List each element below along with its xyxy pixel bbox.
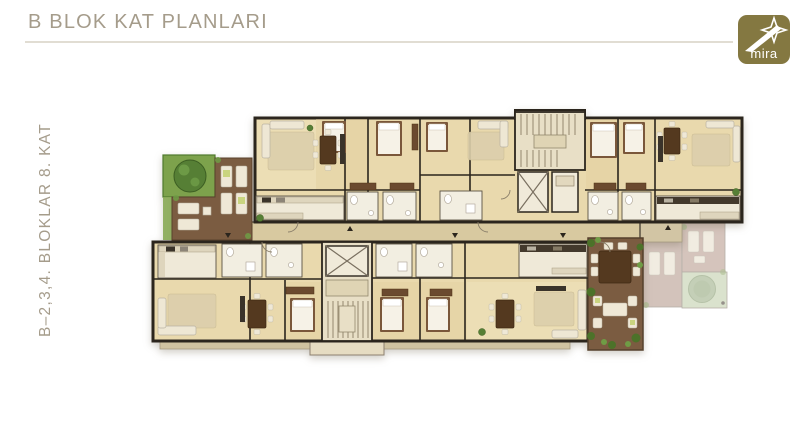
- cushion: [238, 197, 245, 204]
- bed-icon: [426, 297, 450, 332]
- tree-highlight: [179, 165, 190, 176]
- dining-table: [320, 136, 336, 164]
- ghost-leaf: [720, 269, 726, 275]
- bottom-core-landing: [310, 341, 384, 355]
- bed-icon: [290, 298, 315, 332]
- slide-canvas: B BLOK KAT PLANLARI mira B–2,3,4. BLOKLA…: [0, 0, 800, 425]
- core-lobby: [326, 280, 368, 296]
- cushion: [223, 170, 230, 177]
- cushion: [630, 320, 635, 325]
- dining-table: [496, 300, 514, 328]
- ghost-leaf: [643, 302, 649, 308]
- dining-table: [248, 300, 266, 328]
- stair-core-bottom: [322, 242, 372, 341]
- floor-plan: [0, 0, 800, 425]
- ghost-terrace-a: [642, 242, 682, 307]
- dining-table: [664, 128, 680, 154]
- leaf: [245, 233, 251, 239]
- bed-icon: [623, 122, 645, 154]
- shaft-b-cab: [556, 176, 574, 186]
- tree-highlight: [191, 178, 200, 187]
- stair-landing: [534, 135, 566, 148]
- bed-icon: [376, 121, 402, 156]
- garden-tree-icon: [174, 160, 206, 192]
- leaf: [173, 195, 179, 201]
- bed-icon: [426, 122, 448, 152]
- leaf: [215, 157, 221, 163]
- lounge-table: [603, 303, 627, 316]
- bed-icon: [590, 122, 617, 158]
- ghost-corner-dot: [721, 301, 725, 305]
- ghost-tree-crown: [694, 281, 711, 298]
- right-terrace: [587, 237, 644, 350]
- building: [153, 110, 742, 355]
- right-balcony: [640, 222, 682, 242]
- stair-rail: [339, 306, 355, 332]
- bed-icon: [380, 297, 404, 332]
- central-corridor: [215, 222, 640, 242]
- dining-table: [599, 251, 631, 283]
- left-garden-terrace: [163, 155, 252, 240]
- cushion: [595, 298, 600, 303]
